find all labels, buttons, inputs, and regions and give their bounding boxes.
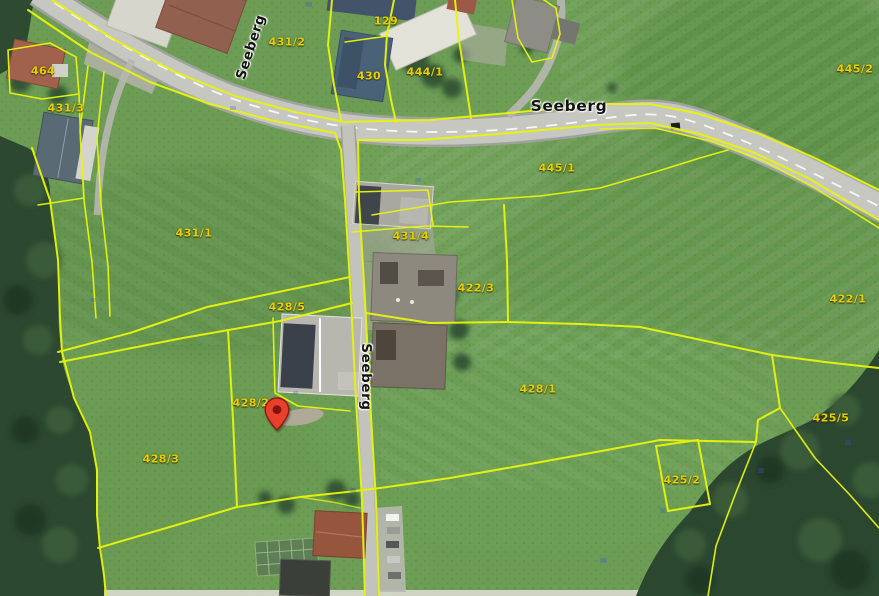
building: [279, 559, 330, 596]
map-graphics: [0, 0, 879, 596]
aerial-map-view[interactable]: 464431/3431/2129430444/1445/2445/1431/14…: [0, 0, 879, 596]
pin-center-dot: [273, 405, 282, 414]
location-pin-icon[interactable]: [264, 397, 290, 431]
